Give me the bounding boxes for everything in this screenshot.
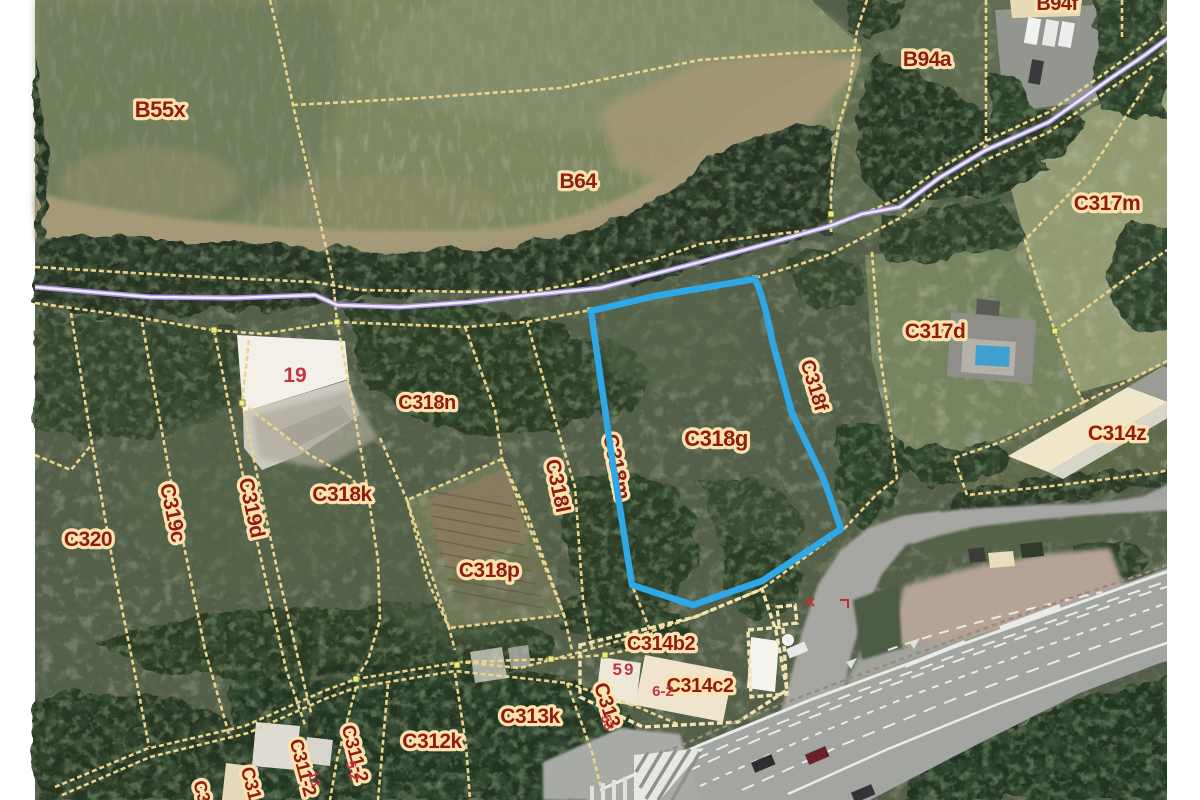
svg-text:C318k: C318k — [312, 483, 372, 506]
svg-text:C317m: C317m — [1074, 192, 1140, 215]
svg-text:C320: C320 — [64, 528, 112, 551]
svg-text:B94f: B94f — [1036, 0, 1078, 15]
svg-text:C318g: C318g — [684, 426, 748, 451]
svg-text:B94a: B94a — [903, 48, 952, 71]
svg-text:C312k: C312k — [402, 730, 462, 753]
svg-text:B64: B64 — [559, 170, 597, 193]
svg-text:59: 59 — [613, 660, 636, 679]
svg-text:C317d: C317d — [905, 320, 966, 343]
svg-text:B55x: B55x — [135, 97, 187, 122]
svg-text:C314z: C314z — [1088, 422, 1146, 445]
svg-text:19: 19 — [283, 364, 306, 387]
svg-text:C314c2: C314c2 — [666, 675, 733, 697]
svg-text:C318p: C318p — [459, 559, 520, 582]
svg-text:C313k: C313k — [500, 705, 560, 728]
svg-text:C318n: C318n — [398, 392, 456, 414]
svg-text:C314b2: C314b2 — [627, 633, 696, 655]
svg-text:6-2: 6-2 — [652, 683, 674, 700]
